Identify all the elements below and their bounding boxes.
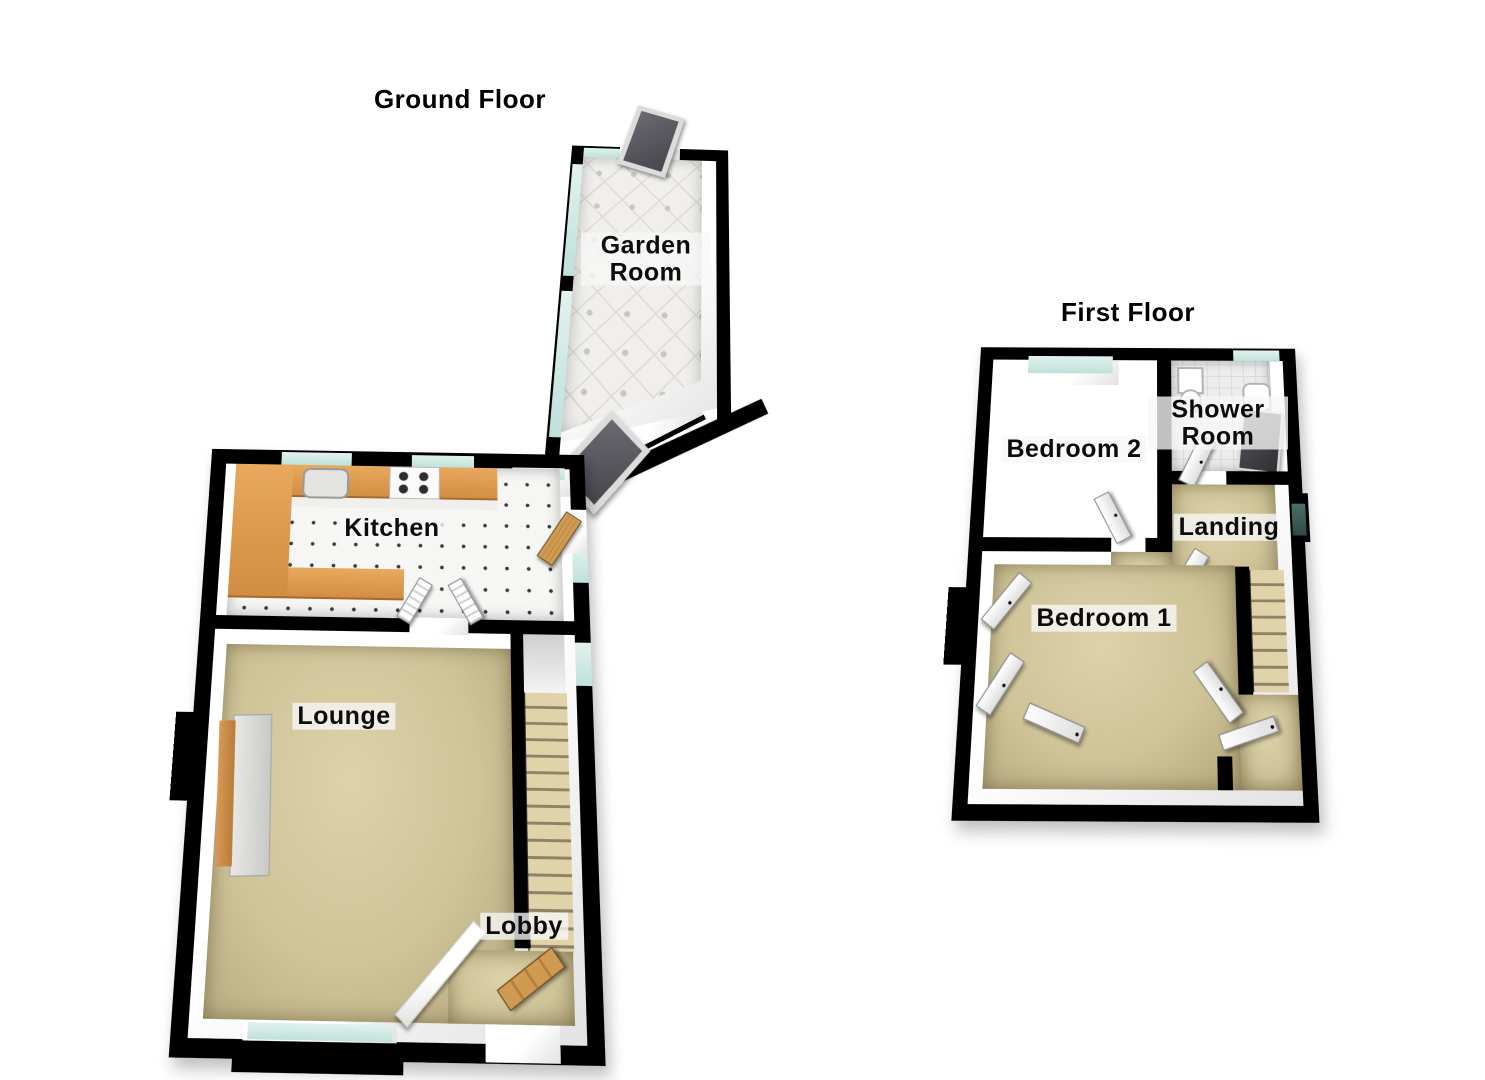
ground-floor-title: Ground Floor [374,84,546,115]
garden-right-wall [716,150,731,426]
first-staircase [1249,570,1289,692]
label-garden-room: Garden Room [581,233,711,286]
bedroom1-bottom-wall-stub [1217,756,1233,790]
kitchen-counter-left-run [228,464,294,599]
lounge-bay-window [247,1022,392,1042]
stairs-side-window [575,643,592,687]
label-landing: Landing [1174,514,1285,541]
label-bedroom2: Bedroom 2 [1001,436,1146,463]
kitchen-window-left [281,452,352,466]
shower-bottom-wall-right [1226,471,1288,485]
kitchen-sink-icon [302,468,350,499]
bedroom1-chimney-breast [943,587,968,665]
floorplan-canvas: Ground Floor First Floor Garden Room Kit… [0,0,1485,1080]
landing-window [1291,504,1306,536]
garden-room-block [543,146,732,484]
kitchen-window-right [412,455,474,468]
bedroom1-floor-understairs [1239,695,1303,791]
bedroom2-window [1028,356,1113,374]
bedroom2-bottom-wall [982,537,1111,552]
label-lobby: Lobby [480,913,568,940]
kitchen-counter-return [287,567,404,600]
kitchen-hob-icon [389,466,440,499]
kitchen-lounge-wall-right [468,619,574,635]
garden-window-top-left [583,148,622,158]
label-lounge: Lounge [292,703,395,730]
label-bedroom1: Bedroom 1 [1031,605,1176,632]
lounge-chimney-breast [169,712,199,801]
bedroom2-bottom-wall-stub [1145,538,1172,552]
kitchen-door-opening [409,617,468,635]
stair-top-landing [523,634,566,695]
label-shower-room: Shower Room [1148,397,1288,450]
bay-window-outer-wall [231,1038,403,1076]
garden-room-plan [572,148,728,448]
label-kitchen: Kitchen [339,515,444,542]
first-floor-title: First Floor [1061,297,1195,328]
fireplace-hearth [229,714,272,877]
